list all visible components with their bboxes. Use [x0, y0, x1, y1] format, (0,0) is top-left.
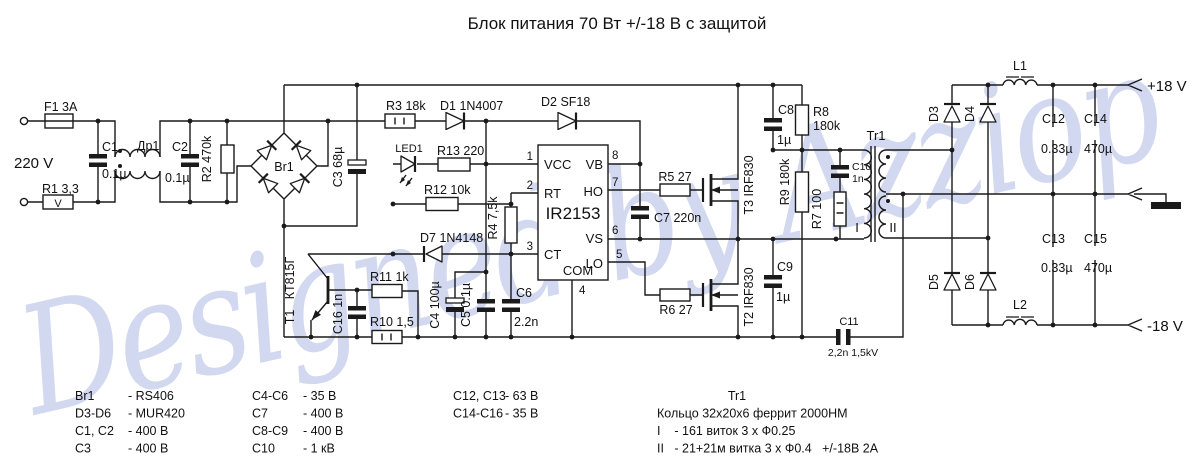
bom-val: - RS406: [128, 389, 174, 403]
c1-label: C1: [102, 140, 118, 154]
r1-label: R1 3,3: [42, 182, 79, 196]
r7-label: R7 100: [810, 189, 824, 229]
t3-label: T3 IRF830: [742, 155, 756, 214]
tr1-label: Tr1: [866, 128, 885, 143]
ground-symbol: [1151, 202, 1181, 209]
c16-label: C16 1n: [331, 294, 345, 334]
bom-val: - 35 В: [505, 407, 538, 421]
bom-ref: C14-C16: [453, 407, 503, 421]
diode-D6: [980, 273, 996, 290]
bom-ref: C8-C9: [252, 424, 288, 438]
l2-label: L2: [1013, 298, 1027, 312]
bom-val: - MUR420: [128, 407, 185, 421]
tr1-note-secondary: II - 21+21м витка 3 х Ф0.4 +/-18В 2А: [657, 442, 879, 456]
resistor-R9: [796, 172, 809, 212]
led-LED1: [400, 156, 415, 186]
resistor-R11: [372, 285, 402, 298]
resistor-R10: [372, 331, 402, 344]
output-pos-label: +18 V: [1147, 78, 1187, 95]
bom-val: - 400 В: [128, 442, 168, 456]
resistor-R4: [505, 207, 517, 243]
t2-label: T2 IRF830: [742, 267, 756, 326]
resistor-R2: [221, 145, 234, 173]
bom-val: - 35 В: [303, 389, 336, 403]
capacitor-C11: [836, 329, 851, 345]
capacitor-C3: [348, 160, 366, 174]
bom-ref: C7: [252, 407, 268, 421]
output-neg-label: -18 V: [1147, 318, 1183, 335]
pin-lo: LO: [586, 256, 603, 271]
br1-label: Br1: [274, 160, 294, 174]
diode-D1: [446, 113, 464, 130]
c9-label: C9: [777, 260, 793, 274]
resistor-R3: [385, 114, 415, 128]
c6-label: C6: [516, 286, 532, 300]
c11-label: C11: [839, 316, 858, 328]
r5-label: R5 27: [658, 170, 691, 184]
resistor-R5: [660, 184, 690, 196]
r11-label: R11 1k: [370, 270, 409, 284]
power-supply-schematic: Designed by Azziop Блок питания 70 Вт +/…: [0, 0, 1200, 466]
diode-D5: [944, 273, 960, 290]
diode-D2: [558, 113, 576, 130]
schematic-title: Блок питания 70 Вт +/-18 В с защитой: [468, 14, 767, 33]
pin-vb: VB: [586, 157, 603, 172]
c15-label: C15: [1084, 232, 1107, 246]
r1-symbol: V: [54, 198, 62, 210]
c3-label: C3 68µ: [331, 147, 345, 188]
tr1-note-title: Tr1: [728, 389, 746, 403]
resistor-R12: [426, 198, 458, 211]
r12-label: R12 10k: [424, 183, 471, 197]
c9-value: 1µ: [776, 290, 790, 304]
r2-label: R2 470k: [200, 135, 214, 182]
r9-label: R9 180k: [778, 158, 792, 205]
d1-label: D1 1N4007: [440, 99, 503, 113]
d4-label: D4: [963, 106, 977, 122]
bom-val: - 400 В: [128, 424, 168, 438]
r3-label: R3 18k: [386, 99, 426, 113]
bom-val: - 400 В: [303, 424, 343, 438]
t1-ref-label: T1: [283, 310, 297, 325]
schematic-page: Designed by Azziop Блок питания 70 Вт +/…: [0, 0, 1200, 466]
r8-label: R8: [813, 105, 829, 119]
bom-ref: C1, C2: [75, 424, 114, 438]
dr1-label: Др1: [137, 139, 159, 153]
c2-value: 0.1µ: [165, 171, 190, 185]
c12-label: C12: [1042, 112, 1065, 126]
capacitor-C2: [181, 154, 199, 167]
winding-II-label: II: [889, 220, 896, 235]
resistor-R6: [660, 289, 690, 301]
tr1-note-primary: I - 161 виток 3 х Ф0.25: [657, 424, 795, 438]
c5-label: C5 0.1µ: [459, 283, 473, 327]
pin-vs: VS: [586, 231, 604, 246]
input-voltage-label: 220 V: [14, 155, 53, 172]
pin-num-8: 8: [612, 150, 618, 162]
c14-label: C14: [1084, 112, 1107, 126]
t1-type-label: КТ815Г: [283, 257, 297, 300]
pin-ho: HO: [584, 184, 604, 199]
c10-label: C10: [852, 161, 871, 173]
pin-rt: RT: [544, 186, 561, 201]
bom-val: - 400 В: [303, 407, 343, 421]
fuse-F1: [45, 114, 73, 128]
led1-label: LED1: [395, 143, 423, 155]
r4-label: R4 7,5k: [486, 196, 500, 240]
c2-label: C2: [172, 140, 188, 154]
resistor-R7: [834, 192, 846, 226]
bom-ref: C3: [75, 442, 91, 456]
d2-label: D2 SF18: [541, 95, 590, 109]
bom-ref: Br1: [75, 389, 95, 403]
c13-label: C13: [1042, 232, 1065, 246]
capacitor-C1: [89, 154, 107, 167]
c15-value: 470µ: [1084, 261, 1112, 275]
c10-value: 1n: [852, 173, 864, 185]
resistor-R13: [438, 158, 470, 171]
c8-label: C8: [778, 103, 794, 117]
pin-num-3: 3: [527, 241, 533, 253]
r13-label: R13 220: [437, 144, 484, 158]
resistor-R8: [796, 105, 809, 135]
tr1-note-core: Кольцо 32х20х6 феррит 2000НМ: [657, 407, 848, 421]
c1-value: 0.1µ: [102, 167, 127, 181]
pin-vcc: VCC: [544, 157, 571, 172]
c8-value: 1µ: [777, 133, 791, 147]
r6-label: R6 27: [659, 303, 692, 317]
bom-ref: C4-C6: [252, 389, 288, 403]
pin-num-7: 7: [612, 177, 618, 189]
pin-num-1: 1: [527, 151, 533, 163]
d5-label: D5: [927, 274, 941, 290]
c13-value: 0.33µ: [1041, 261, 1073, 275]
c7-label: C7 220n: [654, 211, 701, 225]
l1-label: L1: [1013, 59, 1027, 73]
c11-value: 2,2n 1,5kV: [828, 347, 878, 359]
pin-num-2: 2: [527, 180, 533, 192]
d6-label: D6: [963, 274, 977, 290]
bom-ref: D3-D6: [75, 407, 111, 421]
f1-label: F1 3A: [44, 100, 78, 114]
c12-value: 0.33µ: [1041, 142, 1073, 156]
winding-I-label: I: [855, 220, 859, 235]
c6-value: 2.2n: [514, 315, 538, 329]
bom-val: - 63 В: [505, 389, 538, 403]
bom-val: - 1 кВ: [303, 442, 335, 456]
pin-ct: CT: [544, 247, 561, 262]
pin-num-5: 5: [616, 249, 622, 261]
c4-label: C4 100µ: [428, 281, 442, 329]
d7-label: D7 1N4148: [420, 231, 483, 245]
c14-value: 470µ: [1084, 142, 1112, 156]
bom-ref: C12, C13: [453, 389, 506, 403]
pin-num-4: 4: [579, 285, 586, 297]
d3-label: D3: [927, 106, 941, 122]
r8-value: 180k: [813, 119, 841, 133]
r10-label: R10 1,5: [370, 315, 414, 329]
bom-ref: C10: [252, 442, 275, 456]
pin-num-6: 6: [612, 225, 618, 237]
ic-name: IR2153: [546, 204, 601, 223]
